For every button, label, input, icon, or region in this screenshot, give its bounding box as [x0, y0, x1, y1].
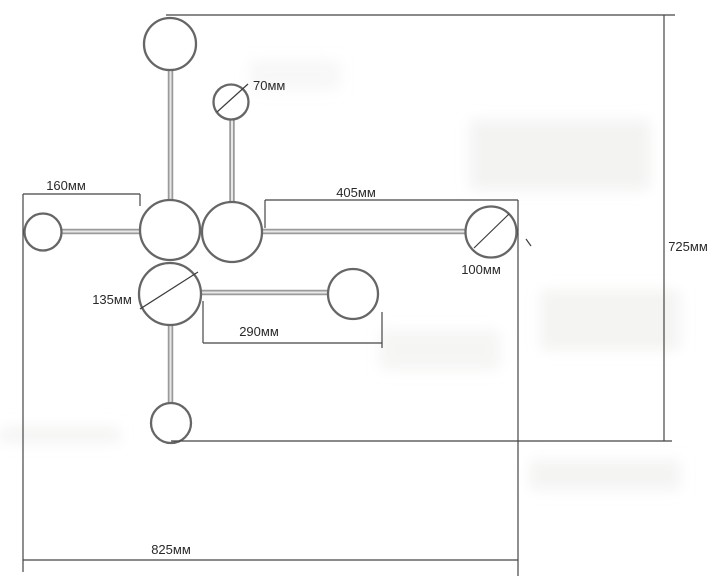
scan-smudge [470, 120, 650, 190]
label-overall-width: 825мм [151, 542, 191, 557]
center-bulb-right [202, 202, 262, 262]
top-bulb [144, 18, 196, 70]
label-small-bulb-diameter: 70мм [253, 78, 285, 93]
label-right-bulb-diameter: 100мм [461, 262, 501, 277]
drawing-canvas: 70мм 160мм 405мм 100мм 135мм 290мм 725мм… [0, 0, 722, 578]
scan-smudge [540, 290, 680, 350]
bottom-bulb [151, 403, 191, 443]
fixture-dimension-diagram: 70мм 160мм 405мм 100мм 135мм 290мм 725мм… [0, 0, 722, 578]
center-bulb-left [140, 200, 200, 260]
label-overall-height: 725мм [668, 239, 708, 254]
scan-smudge [0, 428, 120, 442]
stray-mark [526, 239, 531, 246]
label-center-bulb-diameter: 135мм [92, 292, 132, 307]
left-bulb [25, 214, 62, 251]
label-right-arm-length: 405мм [336, 185, 376, 200]
scan-smudge [380, 330, 500, 370]
scan-smudge [530, 460, 680, 490]
label-left-arm-length: 160мм [46, 178, 86, 193]
center-bulb-bottom [139, 263, 201, 325]
small-top-bulb [214, 85, 249, 120]
label-lower-arm-length: 290мм [239, 324, 279, 339]
lower-right-bulb [328, 269, 378, 319]
